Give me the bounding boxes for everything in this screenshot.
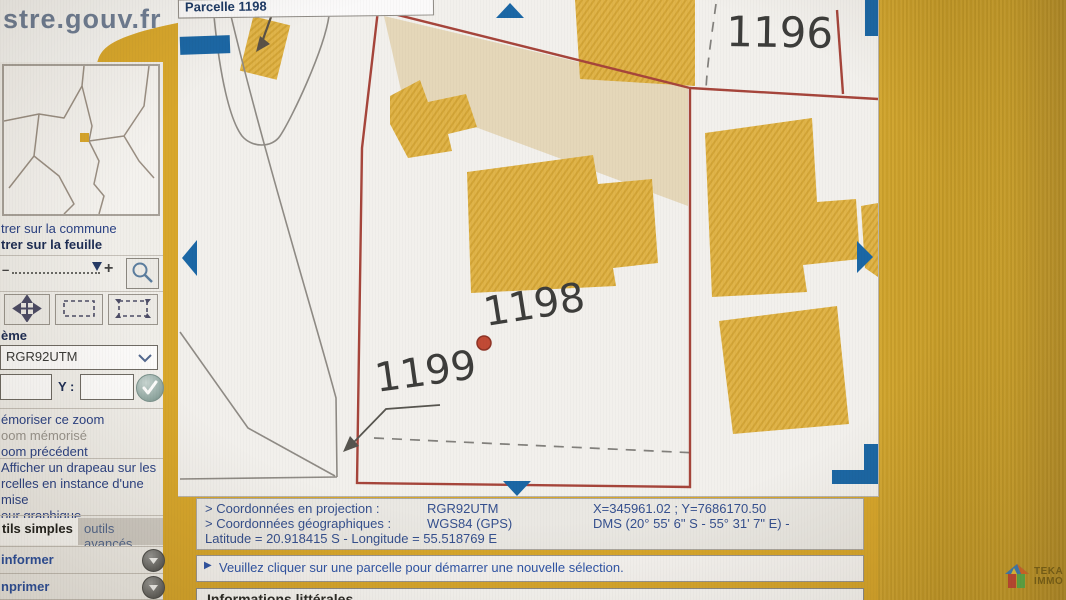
overview-minimap[interactable] [2, 64, 160, 216]
latitude-longitude-line: Latitude = 20.918415 S - Longitude = 55.… [205, 531, 497, 546]
inform-link[interactable]: informer [1, 552, 54, 567]
parcel-label-1199: 1199 [372, 342, 479, 402]
chevron-down-circle-icon [144, 578, 163, 597]
building-east-lower[interactable] [719, 306, 849, 434]
zoom-in-button[interactable]: + [104, 260, 113, 278]
map-canvas: 1196 1198 1199 [178, 0, 878, 496]
message-bullet-icon: ▶ [204, 560, 212, 571]
minimap-location-marker [80, 133, 89, 142]
coordinate-inputs-row: Y : [0, 374, 163, 406]
validate-coordinates-button[interactable] [136, 374, 164, 402]
print-link[interactable]: nprimer [1, 579, 49, 594]
pan-tool-button[interactable] [4, 294, 50, 325]
watermark-line2: IMMO [1034, 576, 1063, 587]
page-right-band [878, 0, 1066, 600]
sidebar: trer sur la commune trer sur la feuille … [0, 62, 163, 600]
sidebar-link-zoom-previous[interactable]: oom précédent [1, 444, 161, 459]
building-small-topleft[interactable] [240, 16, 290, 80]
map-title-bar: Parcelle 1198 [178, 0, 434, 19]
extend-selection-tool-button[interactable] [108, 294, 158, 325]
parcel-label-1196: 1196 [726, 7, 834, 58]
corner-mark-topleft[interactable] [180, 35, 231, 55]
x-coordinate-input[interactable] [0, 374, 52, 400]
check-icon [138, 376, 162, 400]
print-row: nprimer [0, 573, 163, 600]
print-expand-button[interactable] [142, 576, 165, 599]
inform-row: informer [0, 546, 163, 573]
zoom-out-button[interactable]: – [2, 262, 9, 277]
projection-system-label: ème [1, 328, 27, 343]
y-coordinate-label: Y : [58, 379, 74, 394]
projection-coords-label: > Coordonnées en projection : [205, 501, 380, 516]
coordinates-panel: > Coordonnées en projection : RGR92UTM X… [196, 498, 864, 550]
map-tools-row [0, 294, 163, 326]
selection-point-marker [477, 336, 491, 350]
message-text: Veuillez cliquer sur une parcelle pour d… [219, 560, 624, 575]
sidebar-link-zoom-memorized[interactable]: oom mémorisé [1, 428, 161, 443]
informations-litterales-panel[interactable]: Informations littérales [196, 588, 864, 600]
zoom-slider-row: – + [0, 258, 163, 290]
corner-mark-bottomright-h[interactable] [832, 470, 878, 484]
tools-tabs: tils simples outils avancés [0, 518, 163, 544]
projection-select[interactable]: RGR92UTM [0, 345, 158, 370]
projection-xy-values: X=345961.02 ; Y=7686170.50 [593, 501, 766, 516]
tab-advanced-tools[interactable]: outils avancés [78, 518, 163, 545]
flag-option-line2: rcelles en instance d'une mise [1, 476, 163, 508]
chevron-down-icon [138, 354, 152, 363]
building-east-upper[interactable] [705, 118, 860, 297]
chevron-down-circle-icon [144, 551, 163, 570]
road-lines [180, 16, 337, 479]
geographic-coords-label: > Coordonnées géographiques : [205, 516, 391, 531]
teka-immo-watermark: TEKA IMMO [1004, 558, 1064, 596]
cadastre-page: stre.gouv.fr trer sur la commune trer su… [0, 0, 1066, 600]
pan-up-arrow[interactable] [496, 3, 524, 18]
projection-system-value: RGR92UTM [427, 501, 499, 516]
y-coordinate-input[interactable] [80, 374, 134, 400]
minimap-boundaries [4, 66, 158, 214]
sidebar-link-center-feuille[interactable]: trer sur la feuille [1, 237, 161, 252]
pan-cross-icon [5, 295, 49, 322]
projection-select-value: RGR92UTM [6, 349, 78, 364]
sidebar-link-center-commune[interactable]: trer sur la commune [1, 221, 161, 236]
flag-option-line1: Afficher un drapeau sur les [1, 460, 163, 476]
cadastral-map[interactable]: 1196 1198 1199 Parcelle 1198 [178, 0, 879, 497]
instruction-message-bar: ▶ Veuillez cliquer sur une parcelle pour… [196, 555, 864, 582]
dashed-rectangle-arrows-icon [109, 295, 157, 322]
corner-mark-topright[interactable] [865, 0, 878, 36]
zoom-slider-handle[interactable] [92, 262, 102, 271]
inform-expand-button[interactable] [142, 549, 165, 572]
dashed-rectangle-icon [56, 295, 102, 322]
teka-immo-logo-icon [1004, 563, 1030, 591]
pan-down-arrow[interactable] [503, 481, 531, 496]
site-logo-text: stre.gouv.fr [3, 4, 162, 35]
magnifier-icon [127, 259, 156, 286]
sidebar-link-memorize-zoom[interactable]: émoriser ce zoom [1, 412, 161, 427]
pan-left-arrow[interactable] [182, 240, 197, 276]
geographic-dms-values: DMS (20° 55' 6" S - 55° 31' 7" E) - [593, 516, 790, 531]
geographic-system-value: WGS84 (GPS) [427, 516, 512, 531]
zoom-slider-track[interactable] [12, 272, 100, 274]
map-title-text: Parcelle 1198 [185, 0, 267, 14]
informations-litterales-title: Informations littérales [207, 591, 353, 600]
zoom-rectangle-button[interactable] [126, 258, 159, 289]
select-rectangle-tool-button[interactable] [55, 294, 103, 325]
tab-simple-tools[interactable]: tils simples [0, 518, 79, 545]
